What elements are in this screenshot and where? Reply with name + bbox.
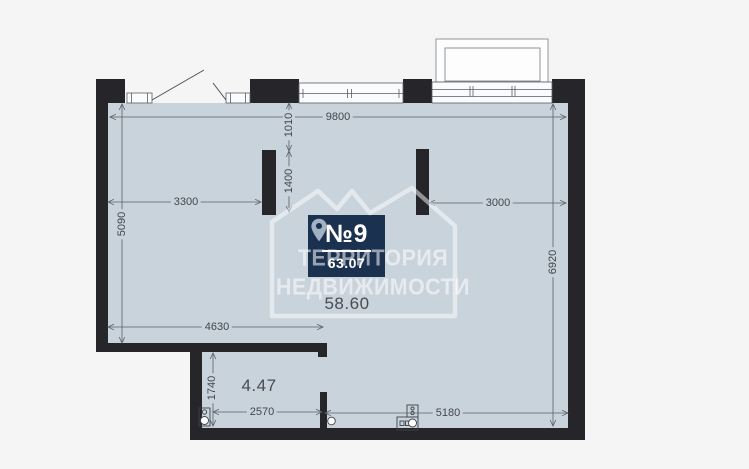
door-swing-lines (152, 70, 226, 100)
wall-segment (190, 428, 585, 440)
window (299, 83, 403, 103)
room-area-label-main: 58.60 (324, 294, 369, 314)
dim-small-room-width: 2570 (247, 406, 277, 418)
floor-plan-canvas: 9800 1010 1400 3300 3000 5090 6920 4630 … (0, 0, 749, 469)
pilaster (416, 149, 429, 215)
wall-segment (96, 79, 125, 103)
dim-right-height: 6920 (547, 247, 559, 277)
wall-segment (403, 79, 432, 103)
wall-segment (318, 352, 327, 357)
location-pin-icon (310, 217, 328, 244)
dim-left-to-pilaster: 3300 (171, 196, 201, 208)
window (127, 93, 152, 103)
dim-small-room-height: 1740 (206, 373, 218, 403)
wall-segment (96, 103, 108, 352)
dim-top-total: 9800 (323, 111, 353, 123)
dim-bottom-left-width: 4630 (202, 321, 232, 333)
windows (127, 82, 552, 103)
dim-pilaster-span: 1400 (283, 166, 295, 196)
unit-number: №9 (322, 221, 371, 252)
unit-badge: №9 63.07 (308, 215, 385, 277)
wall-segment (568, 79, 585, 440)
unit-total-area: 63.07 (328, 255, 366, 271)
wall-segment (320, 392, 327, 428)
wall-segment (96, 343, 327, 352)
balcony-window (432, 82, 552, 103)
pilaster (262, 150, 276, 215)
riser-fixture (328, 417, 336, 425)
room-area-label-small: 4.47 (241, 376, 276, 396)
window (226, 93, 250, 103)
balcony-outline (436, 39, 548, 82)
wall-segment (190, 352, 202, 428)
dim-pilaster-to-right: 3000 (483, 197, 513, 209)
dim-left-height: 5090 (116, 209, 128, 239)
dim-top-offset: 1010 (283, 110, 295, 140)
wall-segment (250, 79, 299, 103)
dim-bottom-right-width: 5180 (433, 407, 463, 419)
